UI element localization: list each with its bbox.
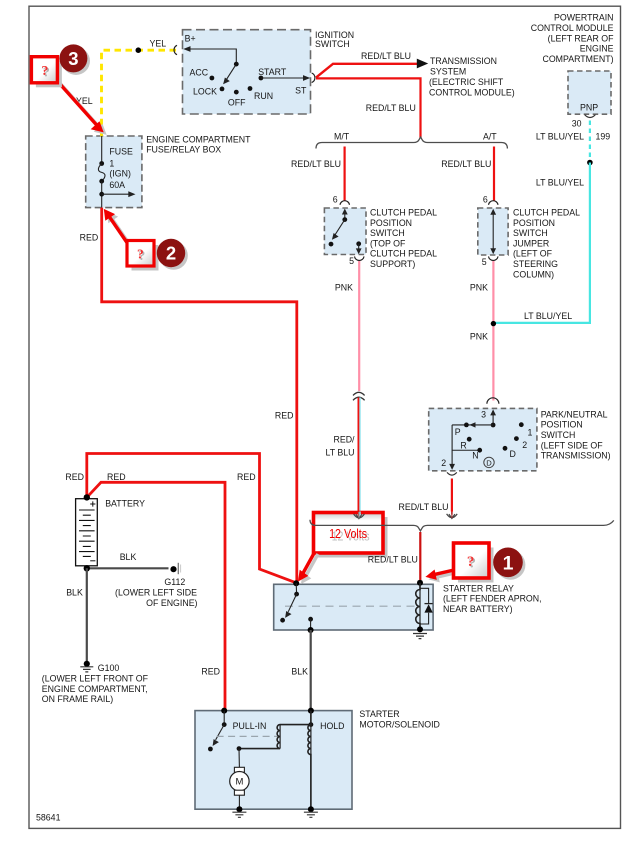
svg-text:ACC: ACC xyxy=(190,67,209,77)
svg-text:RED: RED xyxy=(201,667,220,677)
svg-text:6: 6 xyxy=(483,195,488,205)
svg-text:(LOWER LEFT SIDE: (LOWER LEFT SIDE xyxy=(115,588,197,598)
svg-text:2: 2 xyxy=(441,458,446,468)
svg-text:5: 5 xyxy=(482,257,487,267)
svg-text:RED/LT BLU: RED/LT BLU xyxy=(366,103,416,113)
svg-text:LOCK: LOCK xyxy=(193,86,217,96)
svg-text:3: 3 xyxy=(481,409,486,419)
svg-text:POSITION: POSITION xyxy=(541,420,583,430)
svg-text:FUSE/RELAY BOX: FUSE/RELAY BOX xyxy=(146,145,221,155)
svg-text:SWITCH: SWITCH xyxy=(370,228,405,238)
svg-text:199: 199 xyxy=(596,131,611,141)
svg-text:RED/LT BLU: RED/LT BLU xyxy=(291,159,341,169)
svg-text:3: 3 xyxy=(68,48,78,69)
svg-text:COLUMN): COLUMN) xyxy=(513,269,554,279)
svg-text:ENGINE: ENGINE xyxy=(580,44,614,54)
svg-text:RED: RED xyxy=(237,472,256,482)
svg-text:1: 1 xyxy=(503,552,514,574)
svg-text:12 Volts: 12 Volts xyxy=(329,526,367,541)
svg-text:RED/LT BLU: RED/LT BLU xyxy=(398,502,448,512)
svg-text:CONTROL MODULE: CONTROL MODULE xyxy=(531,23,614,33)
svg-text:CLUTCH PEDAL: CLUTCH PEDAL xyxy=(370,208,437,218)
svg-text:RED: RED xyxy=(65,472,84,482)
svg-text:CLUTCH PEDAL: CLUTCH PEDAL xyxy=(513,208,580,218)
svg-text:LT BLU/YEL: LT BLU/YEL xyxy=(536,131,584,141)
svg-text:D: D xyxy=(510,449,516,459)
svg-text:RED: RED xyxy=(80,232,99,242)
svg-text:D: D xyxy=(486,458,492,467)
svg-text:6: 6 xyxy=(333,195,338,205)
svg-text:(LEFT OF: (LEFT OF xyxy=(513,249,553,259)
svg-text:(LEFT REAR OF: (LEFT REAR OF xyxy=(548,33,614,43)
svg-text:BLK: BLK xyxy=(120,552,137,562)
svg-text:ENGINE COMPARTMENT,: ENGINE COMPARTMENT, xyxy=(42,684,148,694)
svg-text:(TOP OF: (TOP OF xyxy=(370,238,406,248)
svg-text:POSITION: POSITION xyxy=(513,218,555,228)
svg-text:COMPARTMENT): COMPARTMENT) xyxy=(542,54,613,64)
svg-text:(ELECTRIC SHIFT: (ELECTRIC SHIFT xyxy=(429,77,504,87)
svg-text:LT BLU/YEL: LT BLU/YEL xyxy=(524,311,572,321)
svg-text:M: M xyxy=(235,777,243,788)
svg-text:BLK: BLK xyxy=(291,667,308,677)
svg-text:2: 2 xyxy=(522,440,527,450)
svg-text:G112: G112 xyxy=(164,577,185,587)
svg-text:ON FRAME RAIL): ON FRAME RAIL) xyxy=(42,694,113,704)
svg-text:1: 1 xyxy=(528,427,533,437)
svg-text:STEERING: STEERING xyxy=(513,259,558,269)
svg-text:RED: RED xyxy=(275,411,294,421)
svg-text:(LOWER LEFT FRONT OF: (LOWER LEFT FRONT OF xyxy=(42,674,149,684)
svg-text:PNK: PNK xyxy=(335,283,353,293)
svg-text:PARK/NEUTRAL: PARK/NEUTRAL xyxy=(541,409,608,419)
svg-text:RED/LT BLU: RED/LT BLU xyxy=(361,51,411,61)
svg-text:TRANSMISSION): TRANSMISSION) xyxy=(541,451,611,461)
svg-text:PNP: PNP xyxy=(580,102,598,112)
svg-text:LT BLU/YEL: LT BLU/YEL xyxy=(536,177,584,187)
svg-text:?: ? xyxy=(41,64,48,79)
svg-text:POSITION: POSITION xyxy=(370,218,412,228)
svg-text:N: N xyxy=(472,450,478,460)
svg-text:HOLD: HOLD xyxy=(320,721,344,731)
svg-text:P: P xyxy=(455,427,461,437)
svg-text:BATTERY: BATTERY xyxy=(105,499,145,509)
svg-text:STARTER: STARTER xyxy=(359,709,399,719)
svg-text:PNK: PNK xyxy=(470,283,488,293)
svg-text:RED/LT BLU: RED/LT BLU xyxy=(368,555,418,565)
svg-text:?: ? xyxy=(137,247,144,262)
svg-text:R: R xyxy=(460,440,466,450)
svg-text:TRANSMISSION: TRANSMISSION xyxy=(430,56,497,66)
svg-text:STARTER RELAY: STARTER RELAY xyxy=(443,583,514,593)
svg-text:(IGN): (IGN) xyxy=(109,169,131,179)
svg-text:BLK: BLK xyxy=(66,588,83,598)
svg-text:ST: ST xyxy=(295,85,307,95)
svg-text:A/T: A/T xyxy=(483,132,497,142)
svg-text:1: 1 xyxy=(109,158,114,168)
svg-text:RED/: RED/ xyxy=(333,435,355,445)
svg-text:SYSTEM: SYSTEM xyxy=(430,67,466,77)
svg-text:FUSE: FUSE xyxy=(109,147,133,157)
svg-text:START: START xyxy=(258,67,287,77)
svg-text:SWITCH: SWITCH xyxy=(541,430,576,440)
svg-text:SWITCH: SWITCH xyxy=(513,228,548,238)
svg-text:OF ENGINE): OF ENGINE) xyxy=(146,598,197,608)
svg-text:58641: 58641 xyxy=(36,813,61,823)
svg-text:RUN: RUN xyxy=(254,91,273,101)
svg-text:PNK: PNK xyxy=(470,332,488,342)
svg-text:PULL-IN: PULL-IN xyxy=(233,721,267,731)
svg-text:CLUTCH PEDAL: CLUTCH PEDAL xyxy=(370,249,437,259)
svg-text:(LEFT SIDE OF: (LEFT SIDE OF xyxy=(541,440,604,450)
svg-text:30: 30 xyxy=(572,119,582,129)
svg-text:NEAR BATTERY): NEAR BATTERY) xyxy=(443,604,513,614)
svg-text:RED/LT BLU: RED/LT BLU xyxy=(441,159,491,169)
svg-text:SUPPORT): SUPPORT) xyxy=(370,259,415,269)
svg-text:CONTROL MODULE): CONTROL MODULE) xyxy=(429,88,515,98)
svg-text:60A: 60A xyxy=(109,180,125,190)
svg-text:?: ? xyxy=(467,554,475,570)
svg-text:5: 5 xyxy=(349,256,354,266)
svg-text:M/T: M/T xyxy=(334,132,350,142)
svg-text:YEL: YEL xyxy=(150,39,167,49)
svg-text:RED: RED xyxy=(107,472,126,482)
svg-text:B+: B+ xyxy=(185,34,196,44)
svg-text:LT BLU: LT BLU xyxy=(325,447,354,457)
svg-text:POWERTRAIN: POWERTRAIN xyxy=(554,13,613,23)
svg-text:MOTOR/SOLENOID: MOTOR/SOLENOID xyxy=(359,719,440,729)
svg-text:(LEFT FENDER APRON,: (LEFT FENDER APRON, xyxy=(443,594,542,604)
svg-text:OFF: OFF xyxy=(228,97,246,107)
svg-text:SWITCH: SWITCH xyxy=(315,39,350,49)
svg-text:2: 2 xyxy=(166,243,176,264)
svg-text:G100: G100 xyxy=(98,663,120,673)
svg-text:JUMPER: JUMPER xyxy=(513,238,549,248)
svg-text:ENGINE COMPARTMENT: ENGINE COMPARTMENT xyxy=(146,135,251,145)
